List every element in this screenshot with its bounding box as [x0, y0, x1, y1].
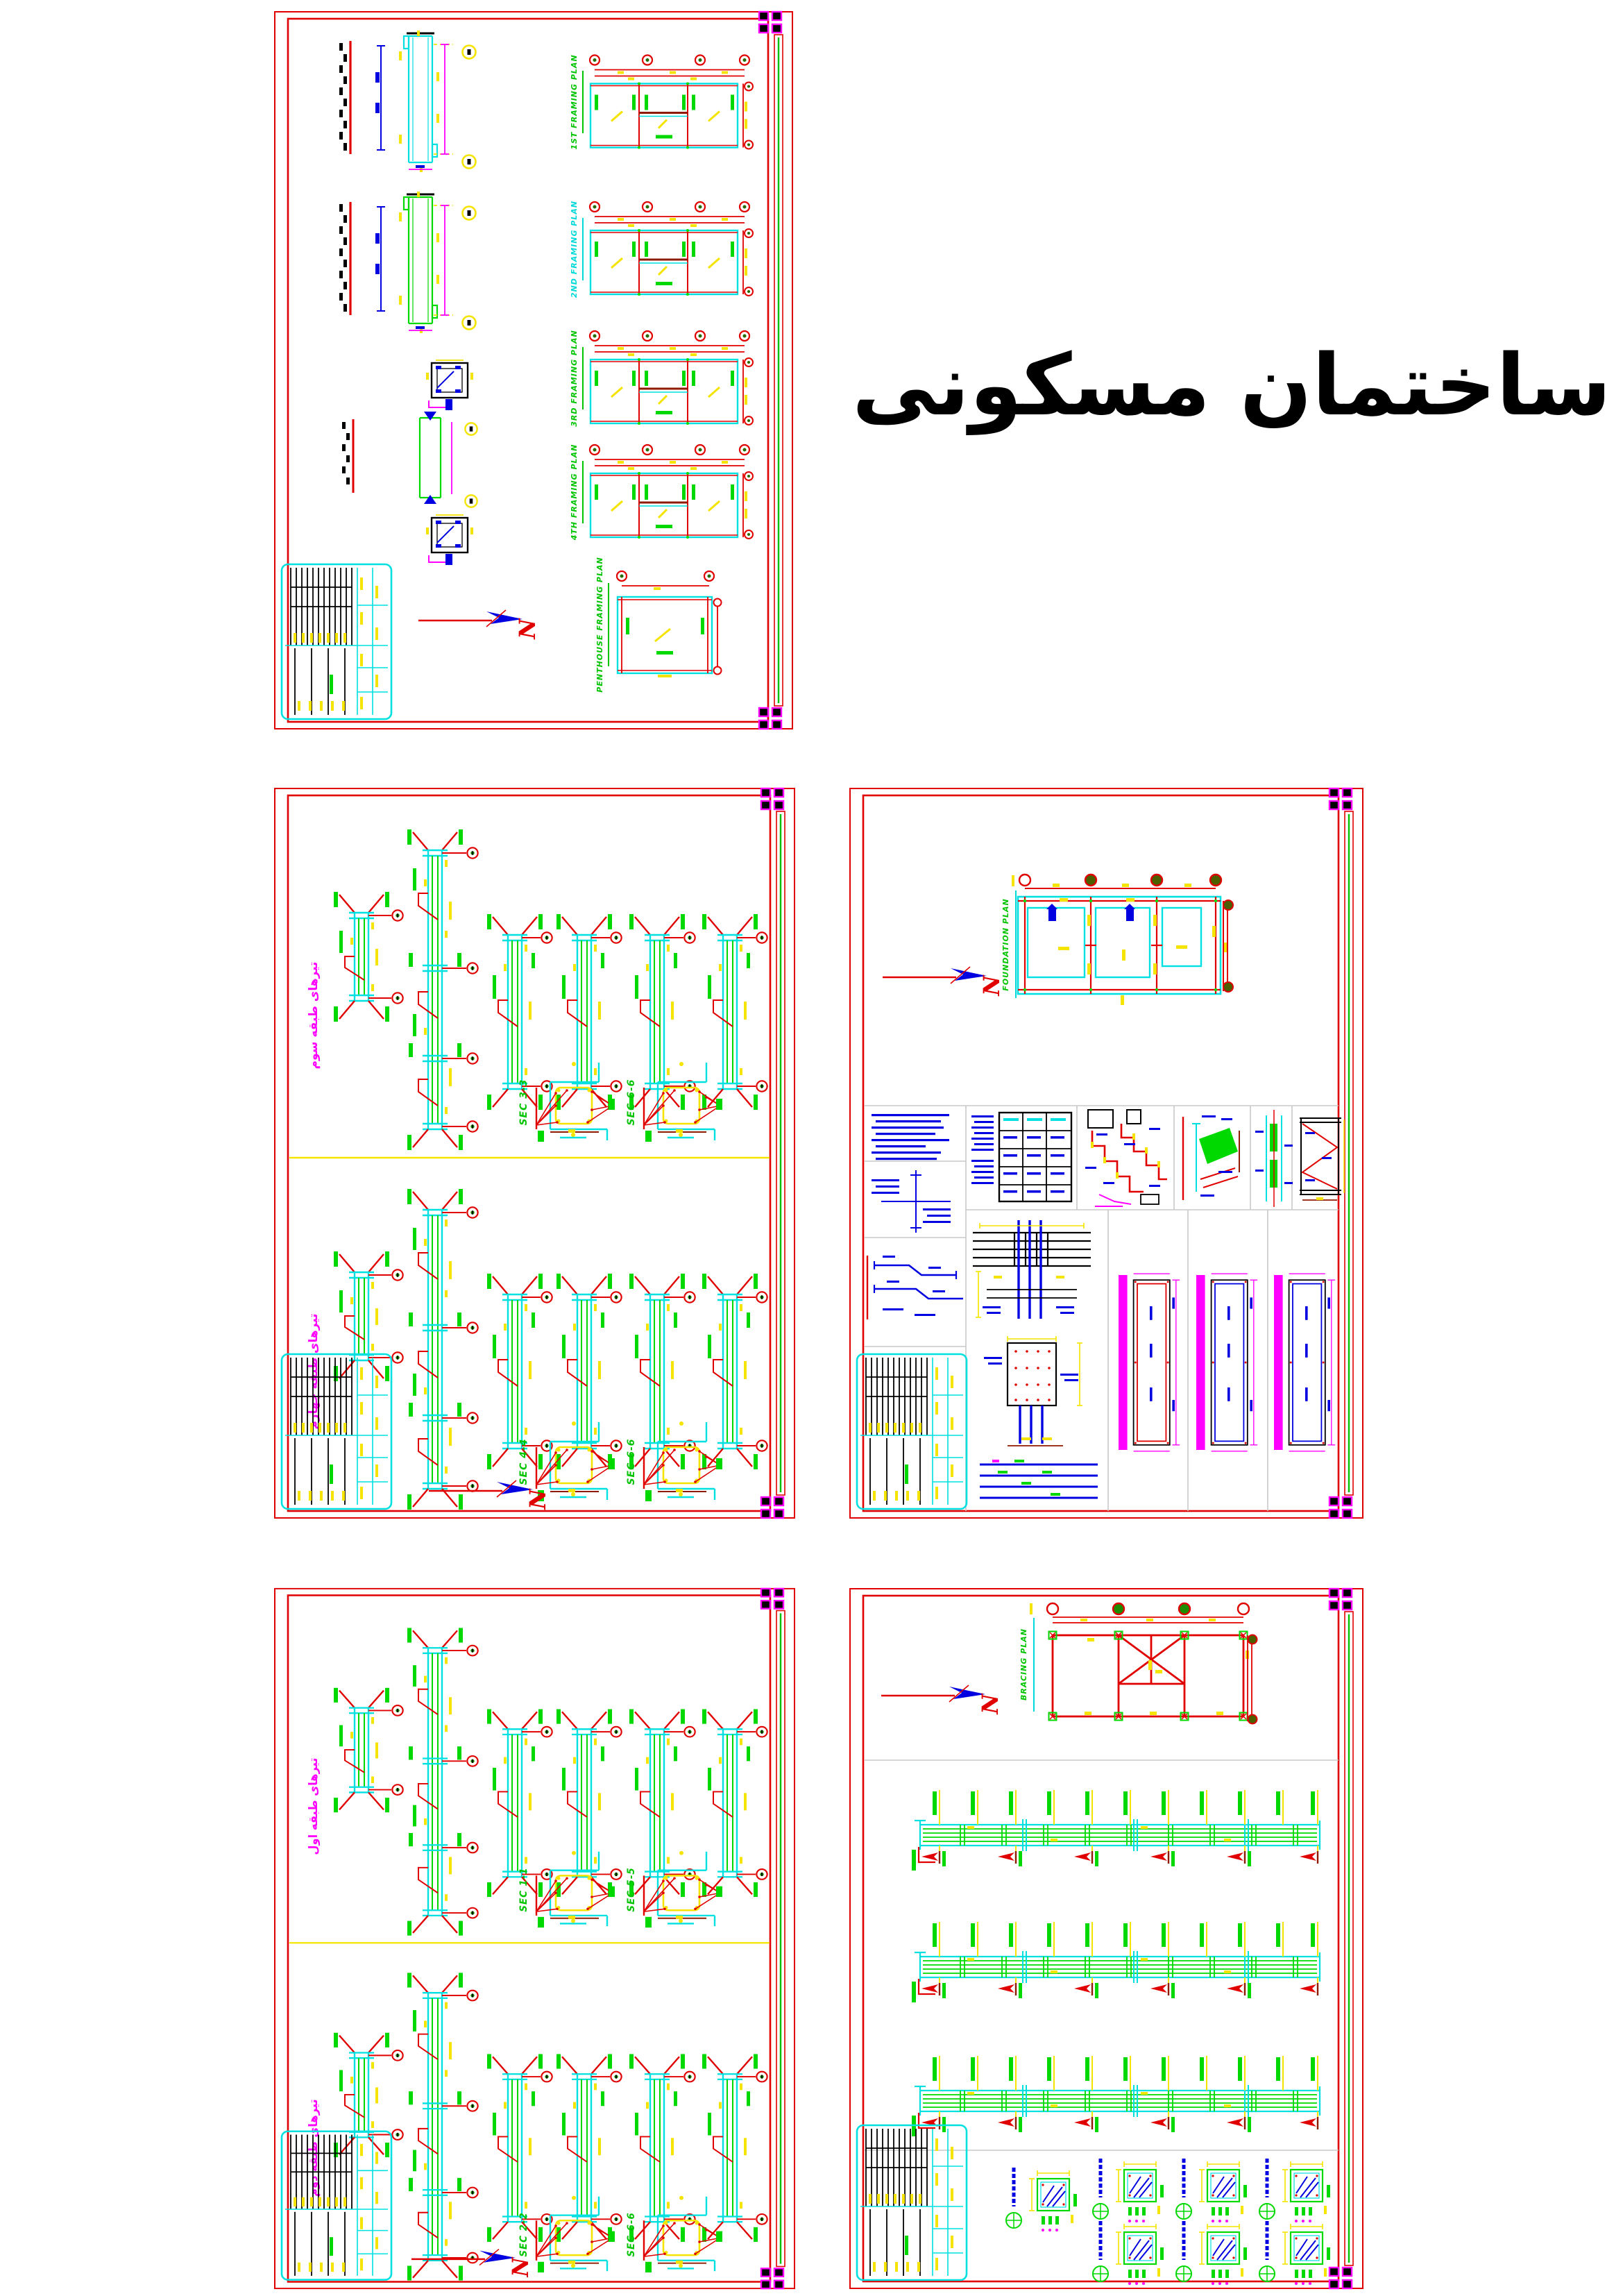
framing-plan-penthouse: [617, 571, 722, 677]
rebar-bars-row: [980, 1460, 1098, 1498]
floor-label-top: تیرهای طبقه اول: [307, 1758, 321, 1855]
column-detail-3: [342, 412, 477, 507]
plan-label: BRACING PLAN: [1019, 1628, 1028, 1700]
dimension-diagram: [872, 1170, 951, 1233]
page: { "title": { "text": "ساختمان مسکونی" },…: [0, 0, 1623, 2296]
registration-marks-icon: [761, 1497, 783, 1518]
registration-marks-icon: [761, 1589, 783, 1609]
base-plate-detail-2: [426, 515, 473, 565]
column-detail-1: [339, 31, 476, 172]
sheet-beams-3rd-4th-drawing: تیرهای طبقه سوم SEC 3-3 SEC 6-6 تیرهای ط…: [273, 786, 797, 1520]
truss-detail: [1300, 1118, 1344, 1200]
beam-long-section-1: [1119, 1274, 1180, 1451]
title-block: [282, 2132, 391, 2280]
project-title: ساختمان مسکونی: [909, 321, 1554, 449]
beam-elevations-bottom-half: [334, 1973, 767, 2280]
beam-long-section-2: [1196, 1274, 1257, 1451]
beam-elevations-top-half: [334, 829, 767, 1150]
registration-marks-icon: [1329, 1497, 1352, 1518]
registration-marks-icon: [759, 12, 781, 33]
bracing-plan: [1047, 1603, 1257, 1724]
sec-label: SEC 2-2: [518, 2212, 529, 2256]
north-letter: N: [514, 618, 541, 640]
sheet-beams-1st-2nd: تیرهای طبقه اول SEC 1-1 SEC 5-5 تیرهای ط…: [273, 1587, 797, 2290]
bracing-plan-label: BRACING PLAN: [1019, 1603, 1034, 1712]
registration-marks-icon: [761, 788, 783, 809]
framing-plan-2: [590, 202, 753, 296]
sheet-frame: [275, 788, 794, 1518]
rebar-schedule-table: [971, 1113, 1071, 1201]
north-arrow: N: [883, 967, 1005, 997]
footing-detail: [1183, 1115, 1239, 1200]
plan-label-1: 1ST FRAMING PLAN: [570, 54, 579, 149]
sec-label: SEC 5-5: [626, 1867, 637, 1911]
base-plate-detail-1: [426, 360, 473, 410]
sheet-beams-1st-2nd-drawing: تیرهای طبقه اول SEC 1-1 SEC 5-5 تیرهای ط…: [273, 1587, 797, 2290]
plan-label-5: PENTHOUSE FRAMING PLAN: [595, 557, 604, 692]
sheet-beams-3rd-4th: تیرهای طبقه سوم SEC 3-3 SEC 6-6 تیرهای ط…: [273, 786, 797, 1520]
sheet-bracing-columns-drawing: BRACING PLAN N: [848, 1587, 1365, 2290]
plan-label-2: 2ND FRAMING PLAN: [570, 201, 579, 298]
registration-marks-icon: [761, 2268, 783, 2288]
column-elevation-strip-3: [912, 2056, 1320, 2136]
framing-plan-1: [590, 56, 753, 149]
title-block: [857, 2125, 967, 2280]
column-detail-2: [339, 192, 476, 333]
plan-label-3: 3RD FRAMING PLAN: [570, 330, 579, 426]
sec-label: SEC 4-4: [518, 1438, 529, 1485]
sheet-foundation-details: FOUNDATION PLAN N: [848, 786, 1365, 1520]
floor-label-top: تیرهای طبقه سوم: [307, 962, 321, 1070]
stair-detail: [1085, 1110, 1167, 1206]
beam-long-section-3: [1274, 1274, 1335, 1451]
title-block: [282, 1354, 391, 1509]
column-section-detail: [1259, 2159, 1330, 2222]
column-elevation-strip-2: [912, 1922, 1320, 2002]
registration-marks-icon: [759, 708, 781, 729]
column-section-detail: [1093, 2221, 1164, 2285]
sec-label: SEC 6-6: [626, 1079, 637, 1125]
north-letter: N: [525, 1488, 551, 1510]
sec-label: SEC 1-1: [518, 1867, 529, 1911]
column-section-detail: [1176, 2159, 1247, 2222]
column-section-detail: [1093, 2159, 1164, 2222]
column-elevation-strip-1: [912, 1790, 1320, 1871]
sheet-bracing-columns: BRACING PLAN N: [848, 1587, 1365, 2290]
title-block: [857, 1354, 967, 1509]
rebar-junction-detail-1: [973, 1220, 1091, 1319]
sheet-frame: [275, 1589, 794, 2288]
framing-plan-labels: 1ST FRAMING PLAN 2ND FRAMING PLAN 3RD FR…: [570, 54, 609, 692]
sheet-framing-plans: 1ST FRAMING PLAN 2ND FRAMING PLAN 3RD FR…: [273, 10, 794, 731]
column-section-detail: [1006, 2168, 1077, 2231]
registration-marks-icon: [1329, 1589, 1352, 1610]
notes-text-block: [872, 1114, 949, 1160]
column-section-detail: [1176, 2221, 1247, 2285]
north-arrow: N: [881, 1685, 1003, 1715]
wall-detail: [1255, 1110, 1293, 1207]
sec-label: SEC 6-6: [626, 1438, 637, 1485]
sec-label: SEC 3-3: [518, 1079, 529, 1125]
registration-marks-icon: [1329, 2268, 1352, 2288]
framing-plan-3: [590, 331, 753, 425]
title-block: [282, 564, 391, 719]
registration-marks-icon: [1329, 788, 1352, 809]
plan-label-4: 4TH FRAMING PLAN: [570, 444, 579, 541]
rebar-junction-detail-2: [984, 1336, 1082, 1446]
sheet-framing-plans-drawing: 1ST FRAMING PLAN 2ND FRAMING PLAN 3RD FR…: [273, 10, 794, 731]
north-letter: N: [508, 2256, 534, 2277]
north-arrow: N: [418, 610, 541, 640]
framing-plan-4: [590, 445, 753, 539]
north-letter: N: [977, 1693, 1003, 1715]
north-letter: N: [978, 974, 1005, 997]
sec-label: SEC 6-6: [626, 2212, 637, 2256]
foundation-plan: [1018, 875, 1233, 1005]
bar-bend-detail: [867, 1256, 963, 1319]
column-section-detail: [1259, 2221, 1330, 2285]
sheet-foundation-details-drawing: FOUNDATION PLAN N: [848, 786, 1365, 1520]
beam-elevations-top-half: [334, 1628, 767, 1935]
beam-elevations-bottom-half: [334, 1189, 767, 1510]
